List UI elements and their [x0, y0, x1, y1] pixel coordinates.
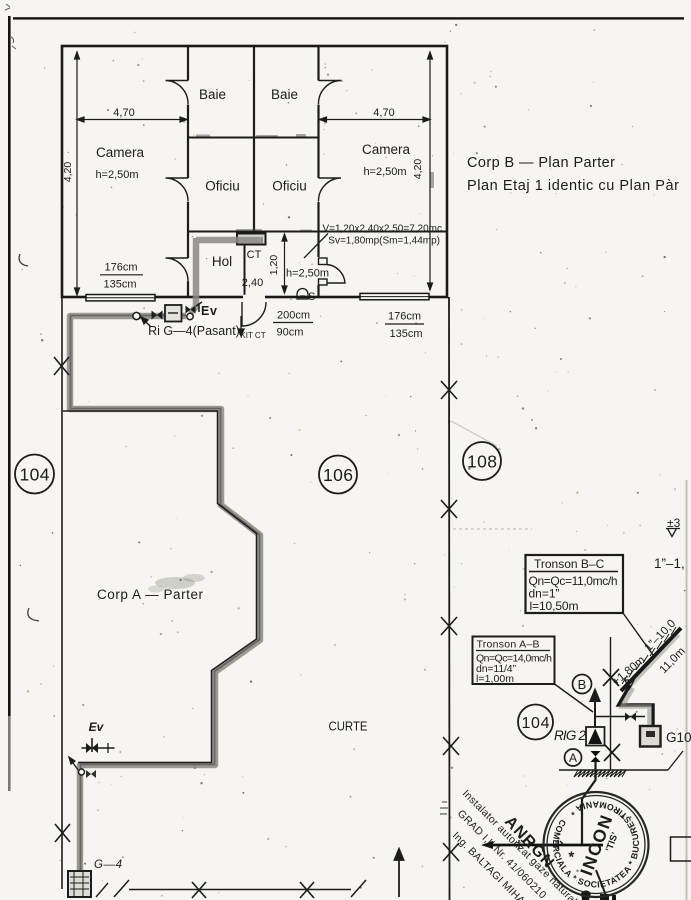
svg-text:G—4: G—4: [94, 859, 122, 871]
svg-text:CURTE: CURTE: [329, 720, 368, 734]
svg-text:l=1,00m: l=1,00m: [476, 673, 514, 685]
svg-text:106: 106: [323, 465, 353, 485]
svg-text:200cm: 200cm: [277, 310, 310, 322]
svg-text:Baie: Baie: [199, 87, 226, 102]
svg-text:176cm: 176cm: [388, 311, 421, 323]
svg-text:104: 104: [522, 715, 550, 732]
svg-text:S: S: [308, 291, 315, 303]
svg-text:RIG 2: RIG 2: [554, 728, 586, 743]
svg-text:V=1,20x2,40x2,50=7,20mc: V=1,20x2,40x2,50=7,20mc: [322, 224, 442, 235]
svg-text:CT: CT: [247, 249, 262, 261]
svg-text:4,20: 4,20: [412, 159, 424, 180]
svg-text:h=2,50m: h=2,50m: [286, 268, 329, 280]
svg-text:Camera: Camera: [96, 145, 145, 160]
svg-text:G10: G10: [666, 730, 691, 745]
svg-text:4,70: 4,70: [113, 107, 134, 119]
svg-text:Ri G—4(Pasant): Ri G—4(Pasant): [148, 324, 240, 338]
svg-text:135cm: 135cm: [389, 328, 422, 340]
svg-text:4,70: 4,70: [373, 107, 394, 119]
svg-text:Ev: Ev: [201, 304, 217, 318]
svg-text:Ev: Ev: [89, 720, 105, 734]
svg-text:Oficiu: Oficiu: [272, 179, 307, 194]
svg-text:Camera: Camera: [362, 142, 411, 157]
svg-text:1,20: 1,20: [268, 255, 280, 276]
svg-text:135cm: 135cm: [103, 279, 136, 291]
svg-text:Hol: Hol: [212, 254, 232, 269]
svg-text:4,20: 4,20: [62, 162, 74, 183]
svg-text:1”–1,: 1”–1,: [654, 556, 685, 571]
svg-text:Corp B — Plan Parter: Corp B — Plan Parter: [467, 155, 615, 171]
svg-text:B: B: [578, 677, 587, 692]
svg-text:l=10,50m: l=10,50m: [530, 599, 579, 613]
svg-text:Tronson B–C: Tronson B–C: [534, 557, 605, 571]
svg-text:h=2,50m: h=2,50m: [95, 169, 138, 181]
svg-text:Baie: Baie: [271, 87, 298, 102]
svg-text:h=2,50m: h=2,50m: [363, 166, 406, 178]
svg-text:Sv=1,80mp(Sm=1,44mp): Sv=1,80mp(Sm=1,44mp): [328, 236, 440, 247]
svg-text:A: A: [569, 751, 577, 765]
svg-text:Tronson A–B: Tronson A–B: [477, 639, 540, 651]
svg-text:108: 108: [467, 452, 497, 472]
svg-text:2,40: 2,40: [242, 277, 263, 289]
svg-text:Oficiu: Oficiu: [205, 179, 240, 194]
svg-text:176cm: 176cm: [104, 262, 137, 274]
svg-text:104: 104: [20, 465, 50, 485]
svg-text:90cm: 90cm: [277, 327, 304, 339]
svg-text:Plan Etaj 1 identic cu Plan Pà: Plan Etaj 1 identic cu Plan Pàr: [467, 178, 679, 194]
svg-text:KIT CT: KIT CT: [240, 331, 265, 340]
